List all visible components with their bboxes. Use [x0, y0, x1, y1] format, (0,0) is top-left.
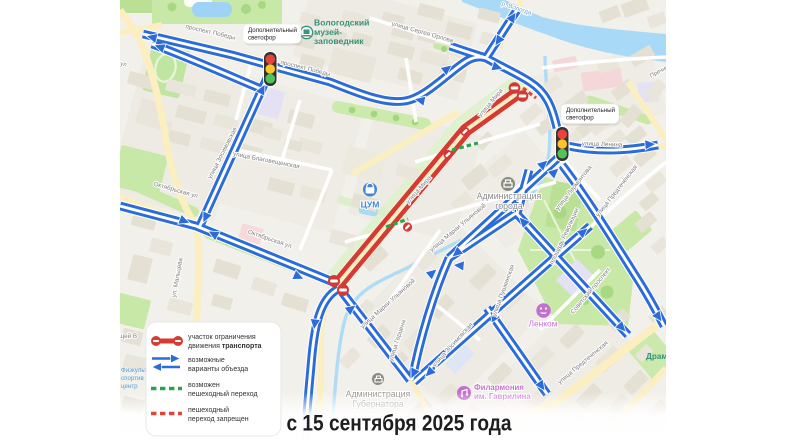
svg-text:ЦУМ: ЦУМ [361, 200, 380, 210]
svg-text:заповедник: заповедник [314, 36, 364, 46]
svg-text:улица Ленина: улица Ленина [582, 140, 623, 148]
svg-text:Дополнительный: Дополнительный [248, 27, 298, 34]
svg-text:переход запрещен: переход запрещен [188, 416, 249, 423]
svg-text:города: города [495, 201, 523, 211]
svg-text:с 15 сентября 2025 года: с 15 сентября 2025 года [287, 411, 512, 436]
svg-text:спортив: спортив [121, 375, 144, 382]
svg-text:возможен: возможен [188, 382, 220, 389]
svg-text:участок ограничения: участок ограничения [188, 334, 256, 341]
svg-text:пешеходный переход: пешеходный переход [188, 390, 258, 398]
svg-text:щей В: щей В [119, 332, 137, 340]
svg-text:Физкульт: Физкульт [121, 367, 147, 374]
svg-text:движения транспорта: движения транспорта [188, 343, 262, 350]
svg-text:Дополнительный: Дополнительный [566, 107, 616, 114]
svg-text:варианты объезда: варианты объезда [188, 365, 248, 373]
svg-text:Филармония: Филармония [474, 383, 524, 392]
svg-text:пешеходный: пешеходный [188, 406, 229, 414]
svg-text:Ленком: Ленком [529, 319, 558, 329]
svg-text:светофор: светофор [248, 35, 276, 42]
svg-text:возможные: возможные [188, 357, 225, 364]
svg-text:центр: центр [121, 383, 138, 390]
svg-text:Администрация: Администрация [477, 191, 542, 201]
svg-text:светофор: светофор [566, 115, 594, 122]
